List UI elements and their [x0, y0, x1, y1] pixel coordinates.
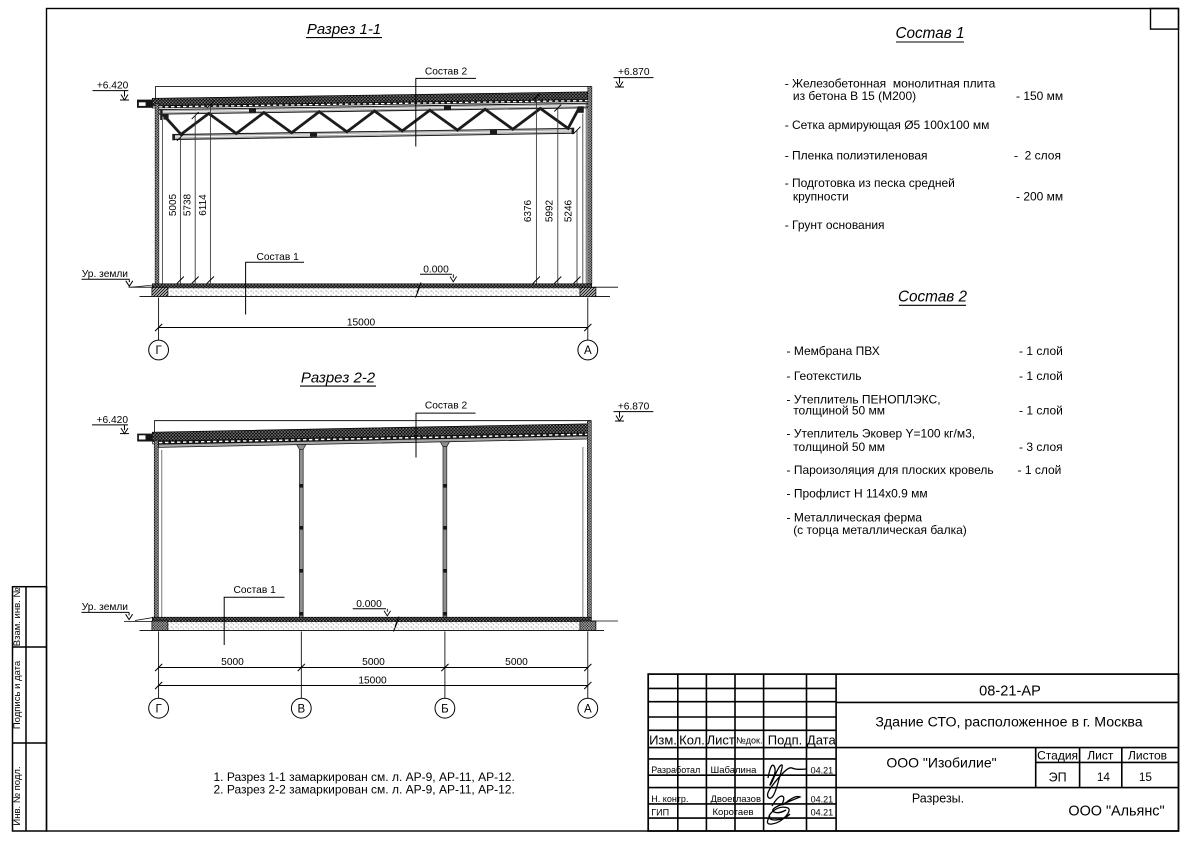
- svg-text:№док.: №док.: [736, 736, 762, 746]
- svg-text:- 1 слой: - 1 слой: [1019, 344, 1063, 358]
- svg-text:Разработал: Разработал: [651, 765, 700, 775]
- svg-text:Разрезы.: Разрезы.: [912, 792, 964, 806]
- svg-text:А: А: [584, 703, 592, 715]
- svg-text:Листов: Листов: [1128, 749, 1167, 763]
- svg-text:- 2 слоя: - 2 слоя: [1014, 148, 1061, 162]
- svg-text:В: В: [297, 703, 305, 715]
- svg-text:Стадия: Стадия: [1037, 749, 1078, 763]
- svg-text:Шабалина: Шабалина: [711, 765, 758, 776]
- svg-text:5000: 5000: [221, 657, 244, 668]
- svg-text:0.000: 0.000: [356, 599, 382, 610]
- svg-text:Ур. земли: Ур. земли: [82, 602, 128, 613]
- svg-text:Состав 1: Состав 1: [895, 25, 964, 42]
- svg-text:Ур. земли: Ур. земли: [82, 269, 128, 280]
- svg-text:крупности: крупности: [793, 189, 849, 203]
- svg-text:ООО "Изобилие": ООО "Изобилие": [886, 755, 996, 771]
- svg-text:Состав 2: Состав 2: [898, 289, 968, 306]
- svg-text:- Грунт основания: - Грунт основания: [785, 218, 885, 232]
- svg-text:ЭП: ЭП: [1049, 770, 1067, 784]
- svg-text:- Пароизоляция для плоских кро: - Пароизоляция для плоских кровель: [787, 463, 994, 477]
- svg-text:15: 15: [1139, 770, 1153, 784]
- svg-text:Кол.: Кол.: [679, 733, 705, 748]
- svg-text:04.21: 04.21: [811, 808, 834, 818]
- svg-text:- Подготовка из песка средней: - Подготовка из песка средней: [785, 176, 955, 190]
- svg-text:Состав 1: Состав 1: [257, 252, 300, 263]
- svg-text:Н. контр.: Н. контр.: [651, 794, 688, 804]
- svg-text:Г: Г: [155, 703, 162, 715]
- svg-text:Инв. № подл.: Инв. № подл.: [12, 766, 23, 825]
- svg-text:А: А: [584, 345, 592, 357]
- svg-text:- Утеплитель Эковер Y=100 кг/м: - Утеплитель Эковер Y=100 кг/м3,: [787, 427, 976, 441]
- svg-text:5000: 5000: [505, 657, 528, 668]
- svg-text:5000: 5000: [362, 657, 385, 668]
- svg-text:- Геотекстиль: - Геотекстиль: [787, 369, 862, 383]
- svg-text:- 1 слой: - 1 слой: [1018, 463, 1062, 477]
- svg-text:15000: 15000: [358, 676, 387, 687]
- svg-text:- Сетка армирующая Ø5 100х100: - Сетка армирующая Ø5 100х100 мм: [785, 118, 990, 132]
- svg-text:Лист: Лист: [1087, 749, 1114, 763]
- svg-text:5005: 5005: [168, 193, 179, 216]
- svg-text:0.000: 0.000: [423, 264, 449, 275]
- svg-text:толщиной 50 мм: толщиной 50 мм: [793, 440, 885, 454]
- svg-text:(с торца металлическая балка): (с торца металлическая балка): [793, 523, 967, 537]
- svg-text:+6.870: +6.870: [618, 67, 650, 78]
- svg-text:Состав 1: Состав 1: [234, 585, 277, 596]
- svg-text:Разрез 2-2: Разрез 2-2: [301, 370, 376, 387]
- svg-text:Лист: Лист: [707, 733, 735, 748]
- svg-text:Состав 2: Состав 2: [425, 67, 468, 78]
- svg-text:- Мембрана ПВХ: - Мембрана ПВХ: [787, 344, 880, 358]
- svg-text:Взам. инв. №: Взам. инв. №: [12, 587, 23, 646]
- svg-text:- Профлист Н 114х0.9 мм: - Профлист Н 114х0.9 мм: [787, 487, 928, 501]
- svg-text:04.21: 04.21: [811, 794, 834, 804]
- svg-text:6114: 6114: [198, 194, 209, 216]
- svg-text:- 3 слоя: - 3 слоя: [1019, 440, 1063, 454]
- svg-text:2. Разрез 2-2 замаркирован см.: 2. Разрез 2-2 замаркирован см. л. АР-9, …: [214, 782, 515, 796]
- svg-text:- 200 мм: - 200 мм: [1016, 189, 1063, 203]
- svg-text:5246: 5246: [564, 199, 575, 222]
- svg-text:- Пленка полиэтиленовая: - Пленка полиэтиленовая: [785, 148, 928, 162]
- svg-text:Двоеглазов: Двоеглазов: [711, 794, 762, 805]
- svg-text:Изм.: Изм.: [649, 733, 677, 748]
- svg-text:08-21-АР: 08-21-АР: [979, 683, 1041, 699]
- svg-text:6376: 6376: [523, 199, 534, 222]
- svg-text:Подпись и дата: Подпись и дата: [12, 660, 23, 729]
- svg-text:+6.870: +6.870: [618, 402, 650, 413]
- svg-text:Г: Г: [155, 345, 162, 357]
- svg-text:Подп.: Подп.: [768, 733, 803, 748]
- svg-text:+6.420: +6.420: [97, 81, 129, 92]
- svg-text:Состав 2: Состав 2: [425, 400, 468, 411]
- svg-text:толщиной 50 мм: толщиной 50 мм: [793, 403, 885, 417]
- svg-text:- 150 мм: - 150 мм: [1016, 89, 1063, 103]
- svg-text:Дата: Дата: [807, 733, 837, 748]
- svg-text:ООО "Альянс": ООО "Альянс": [1068, 803, 1164, 819]
- svg-text:- 1 слой: - 1 слой: [1019, 403, 1063, 417]
- svg-text:Здание СТО, расположенное в г.: Здание СТО, расположенное в г. Москва: [875, 715, 1142, 731]
- svg-text:Разрез 1-1: Разрез 1-1: [307, 21, 381, 38]
- svg-text:15000: 15000: [347, 318, 376, 329]
- svg-text:5992: 5992: [544, 199, 555, 222]
- svg-text:- 1 слой: - 1 слой: [1019, 369, 1063, 383]
- svg-text:Коротаев: Коротаев: [713, 807, 754, 818]
- svg-text:14: 14: [1097, 770, 1111, 784]
- svg-text:5738: 5738: [183, 193, 194, 216]
- svg-text:из бетона В 15 (М200): из бетона В 15 (М200): [793, 89, 916, 103]
- svg-text:ГИП: ГИП: [651, 808, 669, 818]
- svg-text:Б: Б: [441, 703, 449, 715]
- svg-text:04.21: 04.21: [811, 765, 834, 775]
- svg-text:+6.420: +6.420: [97, 415, 129, 426]
